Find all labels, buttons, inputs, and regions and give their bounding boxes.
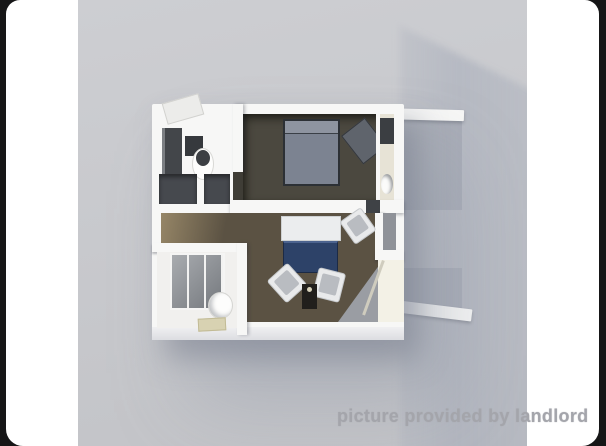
south-wall-face [152, 327, 404, 340]
closet-nook [204, 174, 230, 204]
photo-card: picture provided by landlord [6, 0, 599, 446]
closet-nook [159, 174, 197, 204]
bed [283, 119, 340, 186]
interior-wall [375, 213, 383, 253]
side-table [302, 284, 317, 309]
page-background: { "image": { "type": "3d-floor-plan-rend… [0, 0, 606, 446]
bathroom-wall [237, 243, 247, 335]
toilet-seat [196, 150, 210, 166]
armchair-seat [346, 214, 369, 237]
toilet [208, 292, 233, 319]
middle-wall-doorway [366, 200, 380, 213]
interior-wall [233, 104, 243, 172]
sofa [281, 216, 341, 241]
armchair-seat [318, 273, 340, 296]
bath-mat [198, 317, 227, 331]
bathroom-wall [152, 243, 247, 252]
watermark-text: picture provided by landlord [337, 406, 588, 427]
doorway-floor [233, 172, 243, 200]
corridor-floor [383, 213, 396, 253]
interior-wall [375, 250, 404, 260]
floor-plan [152, 104, 404, 340]
apartment-photo[interactable] [78, 0, 527, 446]
entry-door-area [378, 260, 404, 322]
ensuite-counter [380, 118, 394, 144]
table-lamp [307, 287, 312, 292]
open-door [162, 93, 205, 125]
bed-pillow [285, 121, 338, 134]
cast-shadow [400, 26, 527, 446]
sink [381, 174, 393, 194]
armchair-seat [274, 270, 300, 296]
